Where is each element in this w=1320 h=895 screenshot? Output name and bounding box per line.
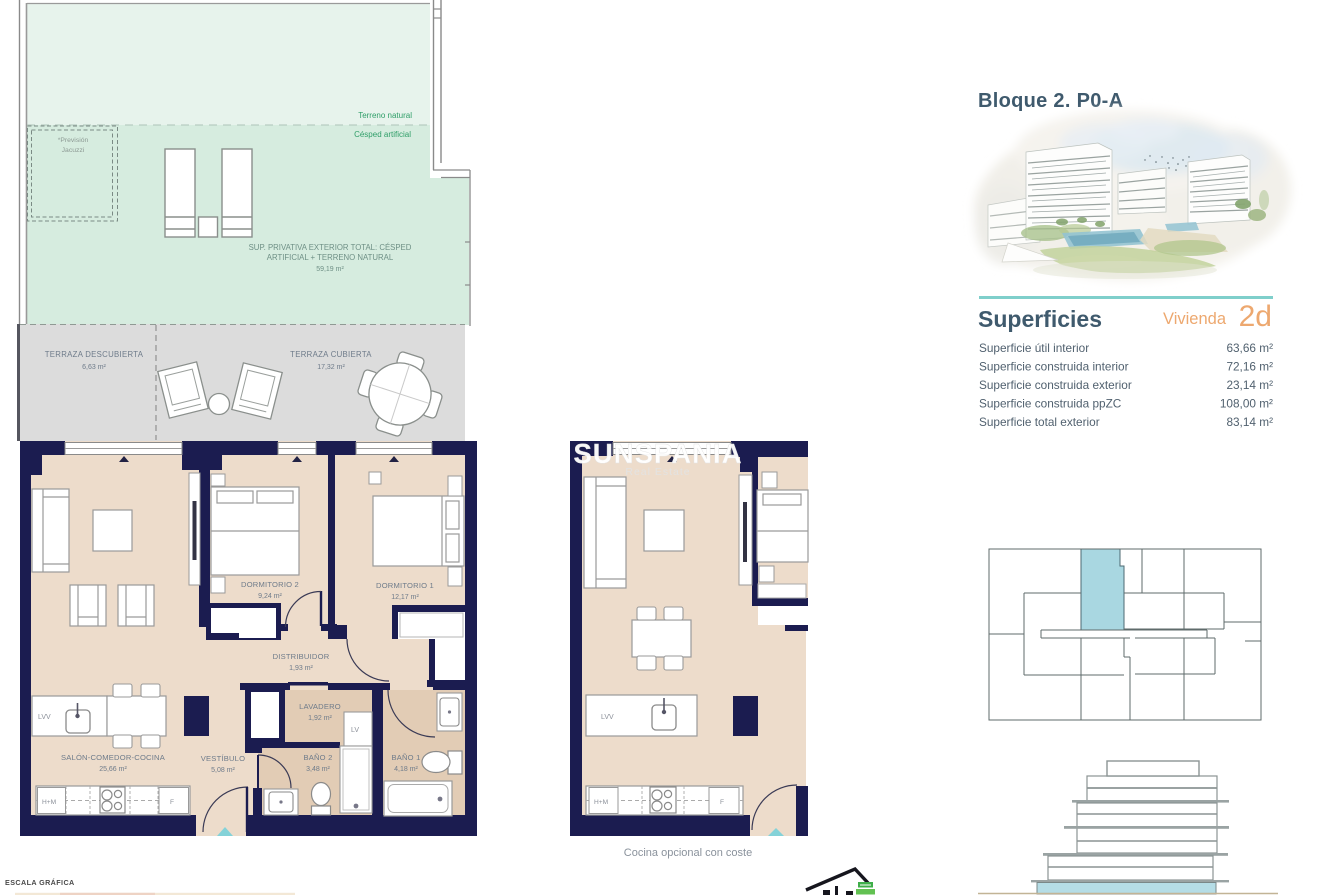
svg-text:Superficie construida interior: Superficie construida interior <box>979 360 1129 374</box>
svg-text:Superficie útil interior: Superficie útil interior <box>979 341 1089 355</box>
svg-text:Superficie construida exterior: Superficie construida exterior <box>979 378 1132 392</box>
svg-text:DORMITORIO 1: DORMITORIO 1 <box>376 581 434 590</box>
svg-text:H+M: H+M <box>42 799 56 806</box>
svg-text:ESCALA GRÁFICA: ESCALA GRÁFICA <box>5 878 75 887</box>
svg-text:2d: 2d <box>1239 300 1272 333</box>
svg-text:6,63 m²: 6,63 m² <box>82 364 106 371</box>
svg-text:Vivienda: Vivienda <box>1163 310 1227 328</box>
svg-text:H+M: H+M <box>594 799 608 806</box>
svg-text:*Previsión: *Previsión <box>58 137 89 144</box>
svg-text:SUP. PRIVATIVA EXTERIOR TOTAL: SUP. PRIVATIVA EXTERIOR TOTAL: CÉSPED <box>249 243 412 252</box>
svg-text:63,66 m²: 63,66 m² <box>1226 341 1273 355</box>
svg-text:LVV: LVV <box>38 714 51 721</box>
svg-text:BAÑO 1: BAÑO 1 <box>391 753 420 762</box>
svg-text:72,16 m²: 72,16 m² <box>1226 360 1273 374</box>
svg-text:1,92 m²: 1,92 m² <box>308 715 332 722</box>
svg-text:1,93 m²: 1,93 m² <box>289 665 313 672</box>
svg-text:LVV: LVV <box>601 714 614 721</box>
svg-text:SUNSPANIA: SUNSPANIA <box>574 438 743 469</box>
svg-text:DORMITORIO 2: DORMITORIO 2 <box>241 580 299 589</box>
svg-text:59,19 m²: 59,19 m² <box>316 266 344 273</box>
svg-text:83,14 m²: 83,14 m² <box>1226 415 1273 429</box>
svg-text:108,00 m²: 108,00 m² <box>1220 397 1273 411</box>
svg-text:5,08 m²: 5,08 m² <box>211 767 235 774</box>
svg-text:TERRAZA DESCUBIERTA: TERRAZA DESCUBIERTA <box>45 350 144 359</box>
svg-text:9,24 m²: 9,24 m² <box>258 593 282 600</box>
svg-text:LAVADERO: LAVADERO <box>299 702 341 711</box>
svg-text:23,14 m²: 23,14 m² <box>1226 378 1273 392</box>
svg-text:17,32 m²: 17,32 m² <box>317 364 345 371</box>
svg-text:Cocina opcional con coste: Cocina opcional con coste <box>624 847 752 859</box>
svg-text:3,48 m²: 3,48 m² <box>306 766 330 773</box>
svg-text:Superficies: Superficies <box>978 306 1102 332</box>
svg-text:ARTIFICIAL + TERRENO NATURAL: ARTIFICIAL + TERRENO NATURAL <box>267 253 394 262</box>
svg-text:4,18 m²: 4,18 m² <box>394 766 418 773</box>
svg-text:12,17 m²: 12,17 m² <box>391 594 419 601</box>
svg-text:LV: LV <box>351 727 359 734</box>
svg-text:Real Estate: Real Estate <box>625 466 690 478</box>
svg-text:Bloque 2. P0-A: Bloque 2. P0-A <box>978 90 1123 112</box>
svg-text:Superficie construida ppZC: Superficie construida ppZC <box>979 397 1122 411</box>
svg-text:F: F <box>720 799 724 806</box>
svg-text:SALÓN-COMEDOR-COCINA: SALÓN-COMEDOR-COCINA <box>61 753 166 762</box>
svg-text:TERRAZA CUBIERTA: TERRAZA CUBIERTA <box>290 350 372 359</box>
svg-text:25,66 m²: 25,66 m² <box>99 766 127 773</box>
svg-text:F: F <box>170 799 174 806</box>
svg-text:BAÑO 2: BAÑO 2 <box>303 753 332 762</box>
svg-text:Jacuzzi: Jacuzzi <box>62 147 85 154</box>
svg-text:Césped artificial: Césped artificial <box>354 130 411 139</box>
svg-text:Terreno natural: Terreno natural <box>358 111 412 120</box>
svg-text:Superficie total exterior: Superficie total exterior <box>979 415 1100 429</box>
svg-text:VESTÍBULO: VESTÍBULO <box>201 754 245 763</box>
svg-text:DISTRIBUIDOR: DISTRIBUIDOR <box>273 652 330 661</box>
